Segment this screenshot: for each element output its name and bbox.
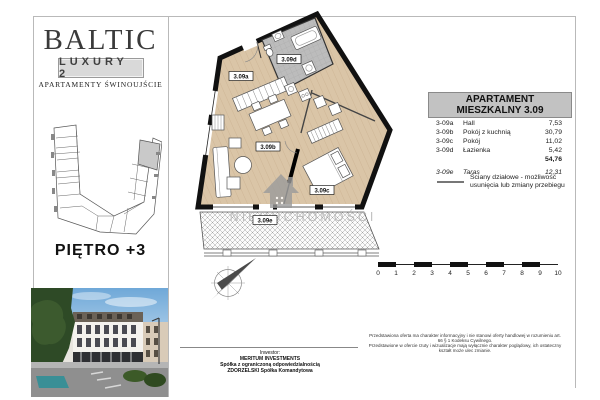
area-row: 54,76 <box>430 156 568 165</box>
area-row-val: 7,53 <box>549 120 562 127</box>
area-row-val: 11,02 <box>545 138 562 145</box>
disclaimer-line1: Przedstawiona oferta ma charakter inform… <box>368 333 562 343</box>
brand-logo: BALTIC <box>33 24 168 57</box>
legend-wall-sample <box>437 181 464 183</box>
sofa <box>213 147 231 198</box>
scale-bar-number: 2 <box>408 270 420 277</box>
apartment-table-header-line1: APARTAMENT <box>466 94 535 105</box>
area-row-code: 3-09a <box>436 120 453 127</box>
disclaimer-line2: Przedstawione w ofercie rzuty i wizualiz… <box>368 343 562 353</box>
area-row-code: 3-09b <box>436 129 453 136</box>
investor-divider <box>180 347 358 348</box>
brand-tagline: APARTAMENTY ŚWINOUJŚCIE <box>33 80 168 89</box>
scale-bar-number: 3 <box>426 270 438 277</box>
scale-bar-number: 8 <box>516 270 528 277</box>
area-row-code: 3-09e <box>436 169 453 176</box>
building-photo <box>31 288 168 397</box>
area-row-name: Hall <box>463 120 475 127</box>
area-row-name: Pokój z kuchnią <box>463 129 511 136</box>
legend-text: Ściany działowe - możliwość usunięcia lu… <box>470 174 570 190</box>
room-label-hall: 3.09a <box>233 75 249 81</box>
floor-keyplan <box>40 122 162 248</box>
coffee-table <box>235 157 252 174</box>
scale-bar-number: 10 <box>552 270 564 277</box>
area-table-rows: 3-09aHall7,533-09bPokój z kuchnią30,793-… <box>430 120 568 178</box>
scale-bar-number: 9 <box>534 270 546 277</box>
apartment-table-header-line2: MIESZKALNY 3.09 <box>456 105 543 116</box>
area-row: 3-09bPokój z kuchnią30,79 <box>430 129 568 138</box>
scale-bar: 012345678910 <box>378 262 558 276</box>
area-row-code: 3-09c <box>436 138 453 145</box>
frame-right <box>575 16 576 388</box>
north-arrow-icon <box>198 253 263 308</box>
frame-sidebar-divider <box>168 16 169 397</box>
area-row-code: 3-09d <box>436 147 453 154</box>
room-label-bathroom: 3.09d <box>281 58 297 64</box>
apartment-table-header: APARTAMENT MIESZKALNY 3.09 <box>428 92 572 118</box>
scale-bar-number: 1 <box>390 270 402 277</box>
scale-bar-number: 7 <box>498 270 510 277</box>
scale-bar-number: 4 <box>444 270 456 277</box>
area-row-val: 5,42 <box>549 147 562 154</box>
scale-bar-segment <box>378 262 396 267</box>
room-label-bedroom: 3.09c <box>314 189 330 195</box>
area-row: 3-09cPokój11,02 <box>430 138 568 147</box>
area-row-val: 54,76 <box>545 156 562 163</box>
scale-bar-segment <box>486 262 504 267</box>
disclaimer: Przedstawiona oferta ma charakter inform… <box>368 333 562 353</box>
armchair-1 <box>229 138 241 148</box>
area-row-name: Pokój <box>463 138 480 145</box>
brand-sub-badge: LUXURY 2 <box>58 58 144 78</box>
watermark-text: NIERUCHOMOŚCI <box>230 209 377 224</box>
scale-bar-segment <box>450 262 468 267</box>
scale-bar-number: 5 <box>462 270 474 277</box>
floor-label: PIĘTRO +3 <box>33 242 168 260</box>
radiator <box>212 115 224 130</box>
apartment-plan: NIERUCHOMOŚCI 3.09a 3.09d 3.09b 3.09c 3.… <box>185 5 400 260</box>
area-row: 3-09dŁazienka5,42 <box>430 147 568 156</box>
room-label-terrace: 3.09e <box>257 219 273 225</box>
investor-partnership: ZDORZELSKI Spółka Komandytowa <box>180 368 360 374</box>
room-label-living: 3.09b <box>260 145 276 151</box>
scale-bar-number: 0 <box>372 270 384 277</box>
scale-bar-number: 6 <box>480 270 492 277</box>
investor-block: Inwestor: MERITUM INVESTMENTS Spółka z o… <box>180 350 360 374</box>
armchair-2 <box>227 177 240 189</box>
floorplan-sheet: BALTIC LUXURY 2 APARTAMENTY ŚWINOUJŚCIE … <box>0 0 600 400</box>
area-row-val: 30,79 <box>545 129 562 136</box>
area-row-name: Łazienka <box>463 147 490 154</box>
scale-bar-segment <box>414 262 432 267</box>
area-row: 3-09aHall7,53 <box>430 120 568 129</box>
scale-bar-segment <box>522 262 540 267</box>
